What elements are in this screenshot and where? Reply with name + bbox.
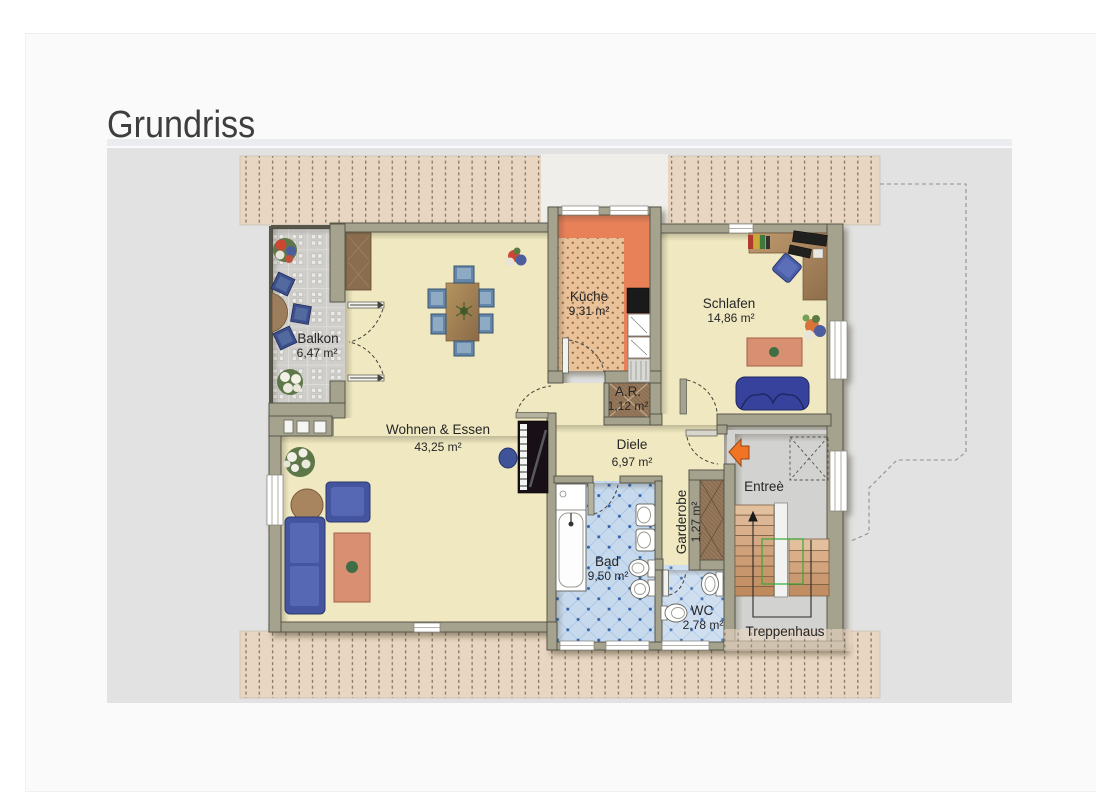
svg-text:6,47 m²: 6,47 m² <box>297 346 338 360</box>
svg-text:Bad: Bad <box>595 554 619 569</box>
svg-text:6,97 m²: 6,97 m² <box>612 455 653 469</box>
svg-text:43,25 m²: 43,25 m² <box>414 440 461 454</box>
svg-text:9,50 m²: 9,50 m² <box>588 569 629 583</box>
svg-text:Garderobe: Garderobe <box>674 490 689 555</box>
svg-text:Wohnen & Essen: Wohnen & Essen <box>386 422 490 437</box>
svg-text:Balkon: Balkon <box>297 331 338 346</box>
svg-text:Entreè: Entreè <box>744 479 784 494</box>
svg-text:1,12 m²: 1,12 m² <box>608 399 649 413</box>
svg-text:Diele: Diele <box>617 437 648 452</box>
svg-text:14,86 m²: 14,86 m² <box>707 311 754 325</box>
svg-text:Schlafen: Schlafen <box>703 296 756 311</box>
svg-text:1,27 m²: 1,27 m² <box>689 502 703 543</box>
svg-text:2,78 m²: 2,78 m² <box>683 618 724 632</box>
svg-text:Treppenhaus: Treppenhaus <box>745 624 824 639</box>
svg-text:Küche: Küche <box>570 289 608 304</box>
svg-text:WC: WC <box>691 603 714 618</box>
svg-text:A.R.: A.R. <box>615 384 641 399</box>
svg-text:9,31 m²: 9,31 m² <box>569 304 610 318</box>
